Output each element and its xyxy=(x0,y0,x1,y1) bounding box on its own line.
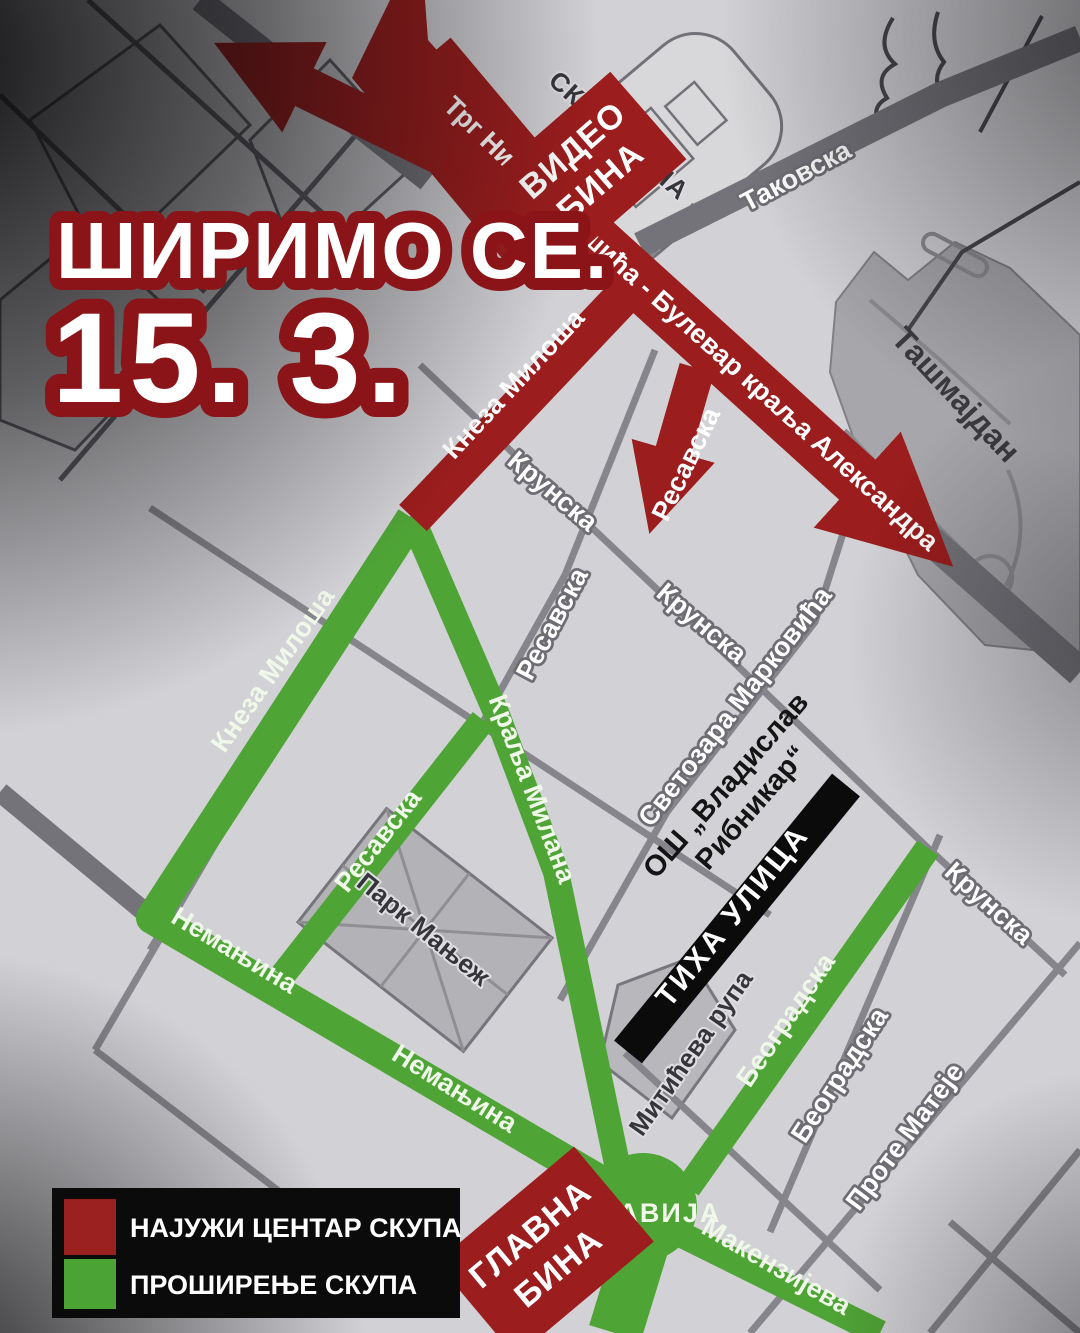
legend-label-expansion: ПРОШИРЕЊЕ СКУПА xyxy=(130,1270,417,1300)
title-line2: 15. 3. xyxy=(52,287,408,430)
legend-swatch-green xyxy=(64,1259,116,1309)
title-line1: ШИРИМО СЕ. xyxy=(56,206,609,295)
legend: НАЈУЖИ ЦЕНТАР СКУПА ПРОШИРЕЊЕ СКУПА xyxy=(52,1188,462,1318)
belgrade-map: Таковска Крунска Крунска Крунска Ресавск… xyxy=(0,0,1080,1333)
vignette-shadows xyxy=(0,0,1080,1333)
legend-swatch-red xyxy=(64,1199,116,1255)
legend-label-core: НАЈУЖИ ЦЕНТАР СКУПА xyxy=(130,1213,462,1243)
protest-route-map-poster: Таковска Крунска Крунска Крунска Ресавск… xyxy=(0,0,1080,1333)
